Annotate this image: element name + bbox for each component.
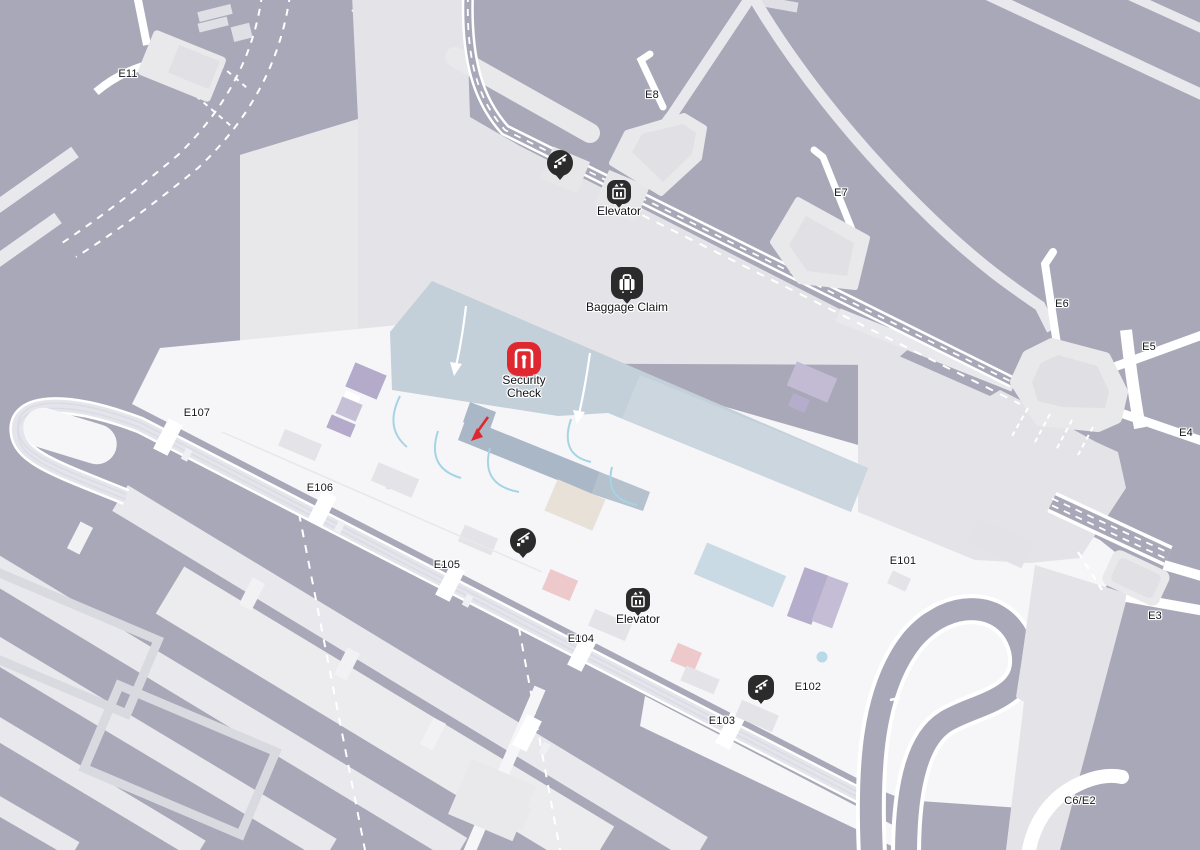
gate-label-e8: E8 [645,89,659,101]
gate-label-e104: E104 [568,633,595,645]
gate-label-e6: E6 [1055,298,1069,310]
poi-label-elevator: Elevator [597,205,641,218]
gate-label-e11: E11 [118,68,137,80]
gate-label-e7: E7 [834,187,848,199]
poi-label-security-check: Security Check [494,374,554,399]
gate-label-c6-e2: C6/E2 [1064,795,1096,807]
terminal-basemap [0,0,1200,850]
gate-label-e103: E103 [709,715,736,727]
escalator-icon[interactable] [747,674,775,706]
gate-label-e107: E107 [184,407,211,419]
gate-label-e105: E105 [434,559,461,571]
gate-label-e5: E5 [1142,341,1156,353]
poi-label-elevator: Elevator [616,613,660,626]
map-canvas[interactable]: E11 E8 E7 E6 E5 E4 E3 C6/E2 E101 E102 E1… [0,0,1200,850]
gate-label-e106: E106 [307,482,334,494]
gate-label-e3: E3 [1148,610,1162,622]
escalator-icon[interactable] [508,527,538,561]
gate-label-e102: E102 [795,681,822,693]
gate-label-e4: E4 [1179,427,1193,439]
gate-label-e101: E101 [890,555,917,567]
escalator-icon[interactable] [545,149,575,183]
poi-label-baggage-claim: Baggage Claim [586,301,668,314]
